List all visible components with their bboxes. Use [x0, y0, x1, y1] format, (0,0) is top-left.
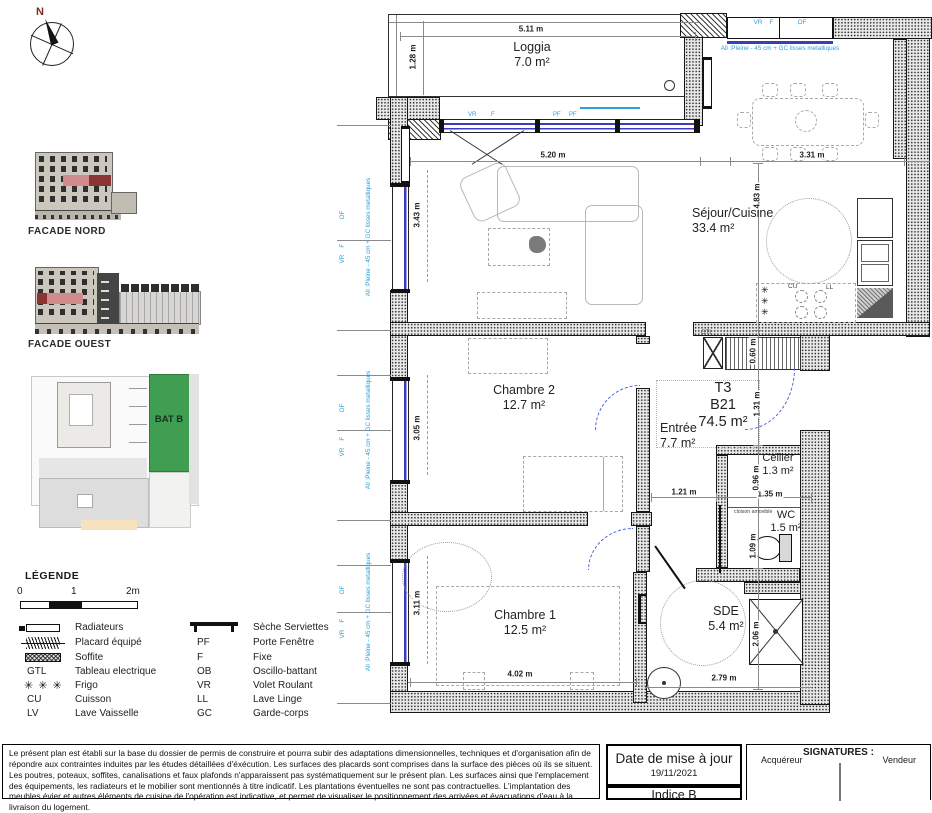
scale-tick-1: 1: [71, 586, 77, 597]
window: [441, 119, 700, 133]
frigo-icon: ✳ ✳ ✳: [24, 679, 63, 692]
site-gray-band: [39, 458, 147, 478]
indice-box: Indice B: [606, 786, 742, 800]
door-arc: [595, 385, 640, 430]
dim-dash-line: [427, 375, 428, 475]
legend: LÉGENDE 0 1 2m Radiateurs Placard équipé…: [0, 560, 340, 730]
room-label-sejour: Séjour/Cuisine 33.4 m²: [692, 206, 773, 236]
window-note: VR F OF All :Pleine - 45 cm + GC lisses …: [721, 1, 839, 72]
wall: [684, 37, 703, 126]
facade-nord-label: FACADE NORD: [28, 226, 106, 237]
door-arc: [588, 528, 633, 570]
washing-machine-dot: [662, 681, 666, 685]
dim-label: 5.20 m: [540, 151, 567, 160]
legend-abbr: CU: [27, 694, 41, 705]
site-building-court: [69, 394, 93, 426]
wall: [716, 455, 728, 568]
fridge-symbol: ✳ ✳ ✳: [761, 285, 769, 318]
leader-line: [337, 125, 391, 126]
window-tag-f: F: [491, 112, 495, 118]
dim-label: 5.11 m: [518, 25, 544, 34]
scale-bar: [20, 601, 138, 609]
dim-tick: [700, 157, 701, 166]
burner: [814, 290, 827, 303]
wall: [376, 97, 440, 120]
dim-tick: [651, 493, 652, 502]
window-swing-line: [472, 130, 525, 165]
dim-tick: [410, 157, 411, 166]
room-label-cellier: Cellier 1.3 m²: [762, 452, 793, 478]
dim-tick: [753, 163, 763, 164]
dim-dash-line: [427, 556, 428, 664]
site-bottom-court: [77, 494, 93, 508]
site-beige-strip: [81, 520, 137, 530]
burner: [795, 306, 808, 319]
dim-tick: [730, 157, 731, 166]
vendeur-label: Vendeur: [882, 755, 916, 765]
dim-label: 3.31 m: [799, 151, 826, 160]
room-label-sde: SDE 5.4 m²: [708, 604, 743, 634]
facade-highlight-dark: [89, 175, 111, 186]
dim-dash-line: [427, 170, 428, 282]
dim-tick: [716, 493, 717, 502]
door-leaf: [654, 545, 686, 589]
window-note-line1: VR F OF: [721, 19, 839, 28]
legend-label: Tableau electrique: [75, 666, 156, 677]
legend-abbr: OB: [197, 666, 211, 677]
unit-code: B21: [698, 397, 747, 414]
room-label-ch2: Chambre 2 12.7 m²: [493, 383, 555, 413]
facade-ouest-low-wing: [119, 291, 201, 325]
room-area: 1.5 m²: [770, 522, 801, 535]
legend-abbr: LL: [197, 694, 208, 705]
dim-line: [423, 21, 424, 95]
wall: [390, 322, 646, 336]
dim-label: 0.96 m: [752, 465, 761, 492]
room-area: 12.5 m²: [494, 623, 556, 638]
room-name: Entrée: [660, 421, 697, 436]
towel-dryer: [638, 594, 646, 624]
loggia-inner-line: [389, 22, 699, 23]
scale-bar-fill: [49, 602, 82, 608]
towel-dryer-leg: [231, 626, 234, 632]
loggia-post: [664, 80, 675, 91]
wall: [631, 512, 652, 526]
dim-label: 1.31 m: [753, 391, 762, 418]
unit-area: 74.5 m²: [698, 414, 747, 431]
dim-tick: [904, 157, 905, 166]
dim-line: [410, 161, 930, 162]
legend-abbr: PF: [197, 637, 210, 648]
window: [392, 380, 409, 481]
site-tick: [129, 388, 147, 389]
dim-label: 1.28 m: [409, 44, 418, 71]
fridge-star: ✳: [761, 307, 769, 318]
unit-type: T3: [698, 380, 747, 397]
electrical-panel: [703, 337, 723, 369]
legend-label: Placard équipé: [75, 637, 142, 648]
room-name: Cellier: [762, 452, 793, 465]
scale-tick-2: 2m: [126, 586, 140, 597]
wall: [636, 336, 650, 344]
dim-label: 4.83 m: [753, 183, 762, 210]
site-tick: [129, 424, 147, 425]
chair: [865, 112, 879, 128]
facade-nord-base: [35, 210, 121, 220]
facade-nord-annex: [111, 192, 137, 214]
window-cap: [391, 662, 410, 666]
turning-circle: [766, 198, 852, 284]
legend-label: Sèche Serviettes: [253, 622, 329, 633]
chair: [790, 83, 806, 97]
cloison-label: cloison amovible: [734, 509, 772, 515]
window-mullion: [439, 119, 444, 133]
dim-label: 3.43 m: [413, 202, 422, 229]
wall: [390, 512, 588, 526]
signatures-box: SIGNATURES : Acquéreur Vendeur: [746, 744, 931, 800]
towel-dryer-icon: [190, 620, 238, 632]
legend-abbr: VR: [197, 680, 211, 691]
fridge-star: ✳: [761, 296, 769, 307]
signature-divider: [839, 763, 841, 801]
facade-ouest-base: [35, 323, 199, 334]
disclaimer-box: Le présent plan est établi sur la base d…: [2, 744, 600, 799]
legend-abbr: F: [197, 652, 203, 663]
bat-b-label: BAT B: [149, 414, 189, 425]
site-right-strip: [189, 374, 199, 504]
legend-label: Soffite: [75, 652, 103, 663]
radiator: [703, 57, 712, 109]
window-mullion: [615, 119, 620, 133]
burner: [795, 290, 808, 303]
bed: [523, 456, 623, 512]
window-note: VR F OF All :Pleine - 45 cm + GC lisses …: [321, 129, 392, 345]
dim-line: [408, 682, 640, 683]
towel-dryer-leg: [194, 626, 197, 632]
room-label-ch1: Chambre 1 12.5 m²: [494, 608, 556, 638]
window-note-line1: VR F OF: [338, 504, 347, 720]
window-cap: [391, 559, 410, 563]
room-label-loggia: Loggia 7.0 m²: [513, 40, 551, 70]
dim-tick: [410, 678, 411, 687]
site-tick: [129, 442, 147, 443]
dim-tick: [811, 493, 812, 502]
window: [392, 186, 409, 290]
wall: [693, 322, 930, 336]
facade-ouest-tower-slits: [101, 277, 109, 319]
date-value: 19/11/2021: [608, 768, 740, 779]
room-label-entree: Entrée 7.7 m²: [660, 421, 697, 451]
legend-abbr: GC: [197, 708, 212, 719]
room-area: 7.0 m²: [513, 55, 551, 70]
nightstand: [463, 672, 485, 690]
legend-label: Radiateurs: [75, 622, 123, 633]
chair: [762, 147, 778, 161]
date-box: Date de mise à jour 19/11/2021: [606, 744, 742, 786]
legend-abbr: LV: [27, 708, 39, 719]
room-area: 12.7 m²: [493, 398, 555, 413]
room-name: WC: [770, 509, 801, 522]
chair: [762, 83, 778, 97]
window-note-line2: All :Pleine - 45 cm + GC lisses metalliq…: [721, 45, 839, 54]
dim-tick: [636, 678, 637, 687]
date-title: Date de mise à jour: [608, 751, 740, 766]
dim-label: 2.06 m: [752, 621, 761, 648]
legend-label: Garde-corps: [253, 708, 309, 719]
loggia-inner-line: [396, 15, 397, 96]
wall: [390, 691, 830, 713]
site-lower-block: [149, 472, 191, 528]
window-tag-pf: PF: [569, 112, 577, 118]
window-cap: [391, 289, 410, 293]
legend-label: Frigo: [75, 680, 98, 691]
unit-label: T3 B21 74.5 m²: [698, 380, 747, 431]
dim-label: 3.11 m: [413, 590, 422, 616]
room-name: SDE: [708, 604, 743, 619]
room-label-wc: WC 1.5 m²: [770, 509, 801, 535]
dining-deco: [795, 110, 817, 132]
placard-icon-line: [21, 643, 65, 644]
room-area: 5.4 m²: [708, 619, 743, 634]
dim-tick: [753, 445, 763, 446]
legend-label: Lave Linge: [253, 694, 302, 705]
facade-highlight-dark: [37, 293, 47, 304]
equipped-closet: [725, 337, 801, 370]
washer-label: LL: [826, 284, 833, 291]
wall: [833, 17, 932, 39]
burner: [814, 306, 827, 319]
room-name: Loggia: [513, 40, 551, 55]
facade-nord-drawing: [33, 148, 143, 226]
window-cap: [391, 480, 410, 484]
window-tag-pf: PF: [553, 112, 561, 118]
gtl-label: GTL: [701, 330, 713, 336]
cooktop-label: CU: [788, 283, 797, 290]
dim-tick: [753, 568, 763, 569]
legend-abbr: GTL: [27, 666, 46, 677]
window-note-line: [580, 107, 640, 109]
facade-ouest-label: FACADE OUEST: [28, 339, 111, 350]
legend-label: Porte Fenêtre: [253, 637, 314, 648]
dim-label: 1.35 m: [757, 490, 784, 499]
plant: [529, 236, 546, 253]
legend-title: LÉGENDE: [25, 570, 79, 582]
site-plan: BAT B: [25, 362, 207, 534]
window-note-line2: All :Pleine - 45 cm + GC lisses metalliq…: [365, 504, 374, 720]
compass-n-label: N: [36, 6, 44, 18]
wall: [636, 526, 650, 572]
wall: [893, 39, 907, 159]
dim-line: [758, 163, 759, 690]
wall: [744, 582, 802, 594]
dim-label: 0.60 m: [749, 338, 758, 365]
door-leaf: [719, 505, 721, 573]
room-name: Chambre 2: [493, 383, 555, 398]
dim-label: 1.09 m: [749, 533, 758, 560]
north-compass: N: [22, 6, 86, 70]
dim-tick: [753, 689, 763, 690]
window-mullion: [535, 119, 540, 133]
window-note-line1: VR F OF: [338, 129, 347, 345]
window-tag-vr: VR: [468, 112, 476, 118]
legend-label: Lave Vaisselle: [75, 708, 139, 719]
room-area: 1.3 m²: [762, 465, 793, 478]
dim-tick: [753, 330, 763, 331]
wall: [800, 335, 830, 371]
scale-tick-0: 0: [17, 586, 23, 597]
toilet-tank: [779, 534, 792, 562]
dim-tick: [695, 32, 696, 41]
kitchen-column: [857, 198, 893, 238]
window-note-line2: All :Pleine - 45 cm + GC lisses metalliq…: [365, 129, 374, 345]
dim-label: 1.21 m: [671, 488, 698, 497]
dim-label: 3.05 m: [413, 415, 422, 442]
tv-unit: [477, 292, 567, 319]
room-name: Chambre 1: [494, 608, 556, 623]
room-area: 7.7 m²: [660, 436, 697, 451]
acquereur-label: Acquéreur: [761, 755, 803, 765]
chair: [737, 112, 751, 128]
chair: [822, 83, 838, 97]
sofa: [585, 205, 643, 305]
dim-line: [645, 687, 812, 688]
window-mullion: [694, 119, 700, 133]
dim-label: 4.02 m: [507, 670, 534, 679]
radiator: [401, 126, 410, 184]
wall: [906, 38, 930, 337]
room-area: 33.4 m²: [692, 221, 773, 236]
facade-ouest-dark-band: [119, 284, 199, 292]
dim-label: 2.79 m: [711, 674, 738, 683]
shower-drain: [773, 629, 778, 634]
dim-tick: [400, 32, 401, 41]
radiator-icon-valve: [19, 626, 25, 631]
dim-line: [651, 497, 812, 498]
legend-label: Oscillo-battant: [253, 666, 317, 677]
window-note: VR F OF All :Pleine - 45 cm + GC lisses …: [321, 504, 392, 720]
window-cap: [391, 377, 410, 381]
wall: [800, 430, 830, 705]
site-tick: [129, 406, 147, 407]
sink-bowl: [861, 244, 889, 262]
cellier-wc-divider: [728, 507, 800, 508]
legend-label: Cuisson: [75, 694, 111, 705]
sink-bowl: [861, 264, 889, 282]
legend-label: Fixe: [253, 652, 272, 663]
nightstand: [570, 672, 594, 690]
plan-sheet: { "compass": { "n": "N" }, "facades": { …: [0, 0, 932, 800]
wardrobe: [468, 338, 548, 374]
soffite-icon: [25, 653, 61, 662]
legend-label: Volet Roulant: [253, 680, 313, 691]
radiator-icon: [26, 624, 60, 632]
disclaimer-text: Le présent plan est établi sur la base d…: [9, 748, 592, 812]
dim-line: [400, 36, 696, 37]
fridge-star: ✳: [761, 285, 769, 296]
bed-pillow-line: [603, 457, 604, 511]
facade-ouest-drawing: [33, 261, 205, 341]
